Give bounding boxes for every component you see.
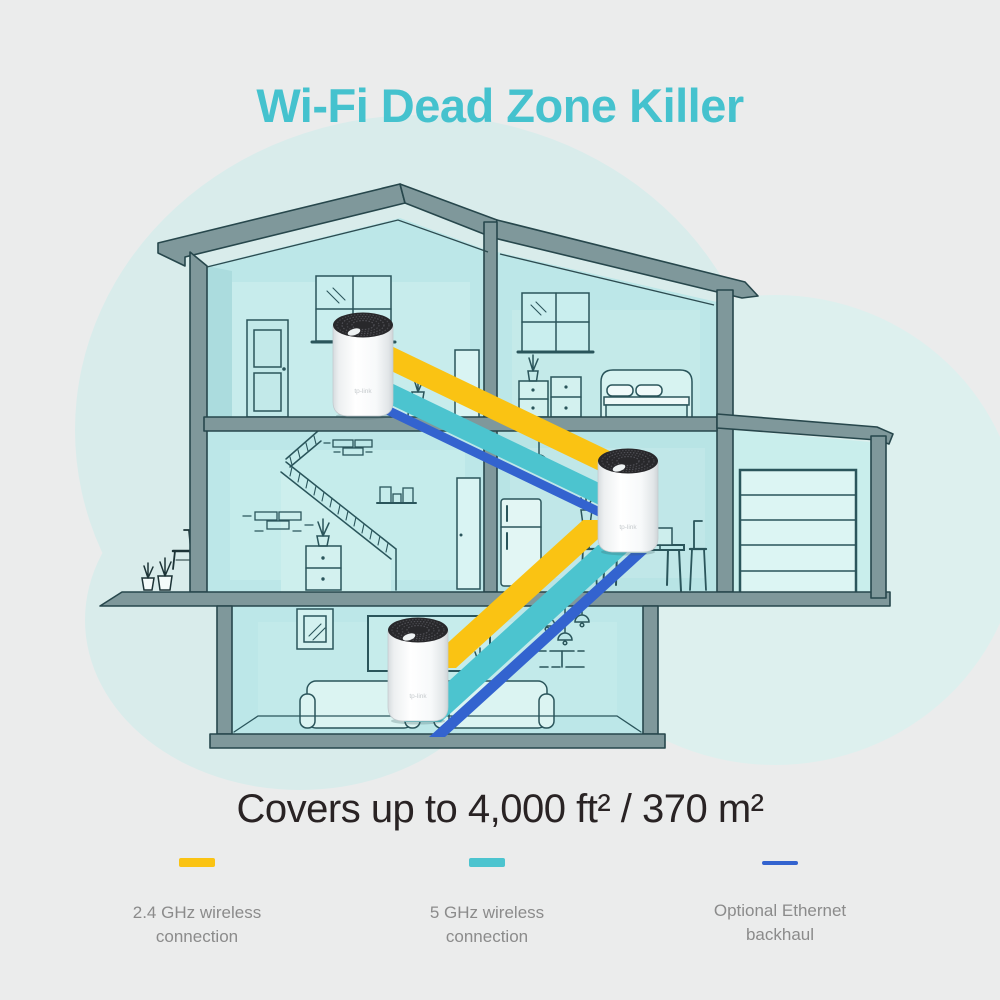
legend-swatch-ethernet xyxy=(762,861,798,865)
house-illustration: tp-link xyxy=(0,0,1000,1000)
picture-frame xyxy=(297,609,333,649)
legend-label-5ghz: 5 GHz wireless connection xyxy=(392,901,582,949)
basement-wall-left xyxy=(217,606,232,734)
window-bedroom xyxy=(518,293,593,352)
legend-swatch-24ghz xyxy=(179,858,215,867)
legend-item-ethernet: Optional Ethernet backhaul xyxy=(650,858,910,947)
garage xyxy=(740,470,856,596)
garage-wall-right xyxy=(871,436,886,598)
wall-right-post xyxy=(717,290,733,592)
door-middle-floor xyxy=(457,478,480,589)
page-title: Wi-Fi Dead Zone Killer xyxy=(0,78,1000,133)
nightstand xyxy=(306,546,341,590)
mesh-unit-top-floor xyxy=(333,313,393,420)
legend-swatch-5ghz xyxy=(469,858,505,867)
mesh-unit-basement xyxy=(388,618,448,725)
legend-label-ethernet: Optional Ethernet backhaul xyxy=(685,899,875,947)
garage-door xyxy=(740,470,856,596)
coverage-text: Covers up to 4,000 ft² / 370 m² xyxy=(0,787,1000,832)
mesh-unit-middle-floor xyxy=(598,449,658,556)
door-top-floor xyxy=(247,320,288,417)
legend-item-24ghz: 2.4 GHz wireless connection xyxy=(67,858,327,949)
page: tp-link xyxy=(0,0,1000,1000)
legend-label-24ghz: 2.4 GHz wireless connection xyxy=(102,901,292,949)
basement-wall-right xyxy=(643,606,658,734)
legend-item-5ghz: 5 GHz wireless connection xyxy=(357,858,617,949)
bed xyxy=(601,370,692,417)
